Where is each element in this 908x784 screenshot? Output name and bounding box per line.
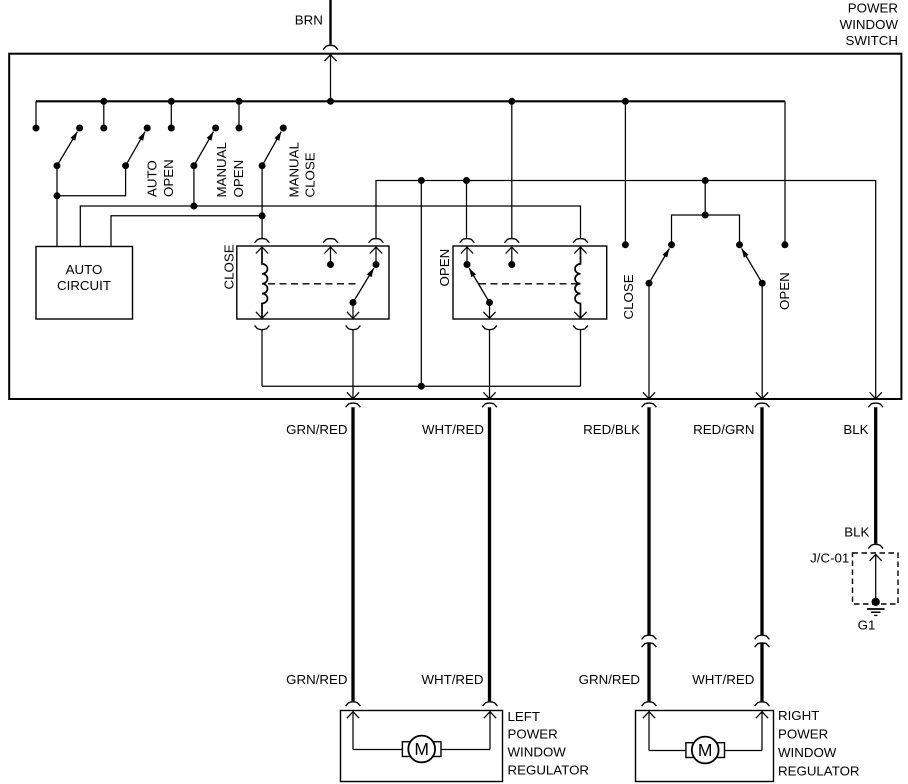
svg-text:REGULATOR: REGULATOR bbox=[778, 763, 860, 778]
svg-text:OPEN: OPEN bbox=[777, 272, 792, 310]
svg-text:WINDOW: WINDOW bbox=[508, 745, 567, 760]
svg-text:WHT/RED: WHT/RED bbox=[692, 672, 754, 687]
svg-text:POWER: POWER bbox=[848, 1, 898, 16]
svg-text:POWER: POWER bbox=[778, 726, 828, 741]
svg-text:OPEN: OPEN bbox=[437, 249, 452, 287]
svg-text:CLOSE: CLOSE bbox=[621, 274, 636, 319]
svg-text:M: M bbox=[414, 739, 429, 759]
svg-text:J/C-01: J/C-01 bbox=[810, 550, 849, 565]
svg-text:POWER: POWER bbox=[508, 727, 558, 742]
svg-text:WINDOW: WINDOW bbox=[840, 17, 899, 32]
svg-text:WHT/RED: WHT/RED bbox=[421, 672, 483, 687]
svg-text:OPEN: OPEN bbox=[161, 159, 176, 197]
svg-text:AUTO: AUTO bbox=[66, 262, 103, 277]
svg-text:RIGHT: RIGHT bbox=[778, 708, 819, 723]
svg-text:AUTO: AUTO bbox=[145, 160, 160, 197]
svg-text:MANUAL: MANUAL bbox=[287, 142, 302, 197]
svg-text:BLK: BLK bbox=[843, 422, 868, 437]
svg-text:OPEN: OPEN bbox=[231, 160, 246, 198]
svg-text:GRN/RED: GRN/RED bbox=[286, 422, 347, 437]
svg-text:BRN: BRN bbox=[295, 13, 323, 28]
svg-text:BLK: BLK bbox=[844, 525, 869, 540]
svg-text:WHT/RED: WHT/RED bbox=[422, 422, 484, 437]
svg-text:GRN/RED: GRN/RED bbox=[286, 672, 347, 687]
svg-text:SWITCH: SWITCH bbox=[846, 33, 898, 48]
svg-text:REGULATOR: REGULATOR bbox=[508, 762, 590, 777]
svg-text:G1: G1 bbox=[858, 617, 876, 632]
svg-text:LEFT: LEFT bbox=[508, 709, 541, 724]
svg-text:CIRCUIT: CIRCUIT bbox=[57, 278, 111, 293]
svg-text:WINDOW: WINDOW bbox=[778, 745, 837, 760]
svg-text:GRN/RED: GRN/RED bbox=[579, 672, 640, 687]
svg-text:MANUAL: MANUAL bbox=[214, 142, 229, 197]
svg-text:CLOSE: CLOSE bbox=[302, 152, 317, 197]
svg-text:RED/GRN: RED/GRN bbox=[693, 422, 754, 437]
svg-text:M: M bbox=[698, 740, 713, 760]
svg-text:CLOSE: CLOSE bbox=[222, 244, 237, 289]
svg-text:RED/BLK: RED/BLK bbox=[583, 422, 640, 437]
